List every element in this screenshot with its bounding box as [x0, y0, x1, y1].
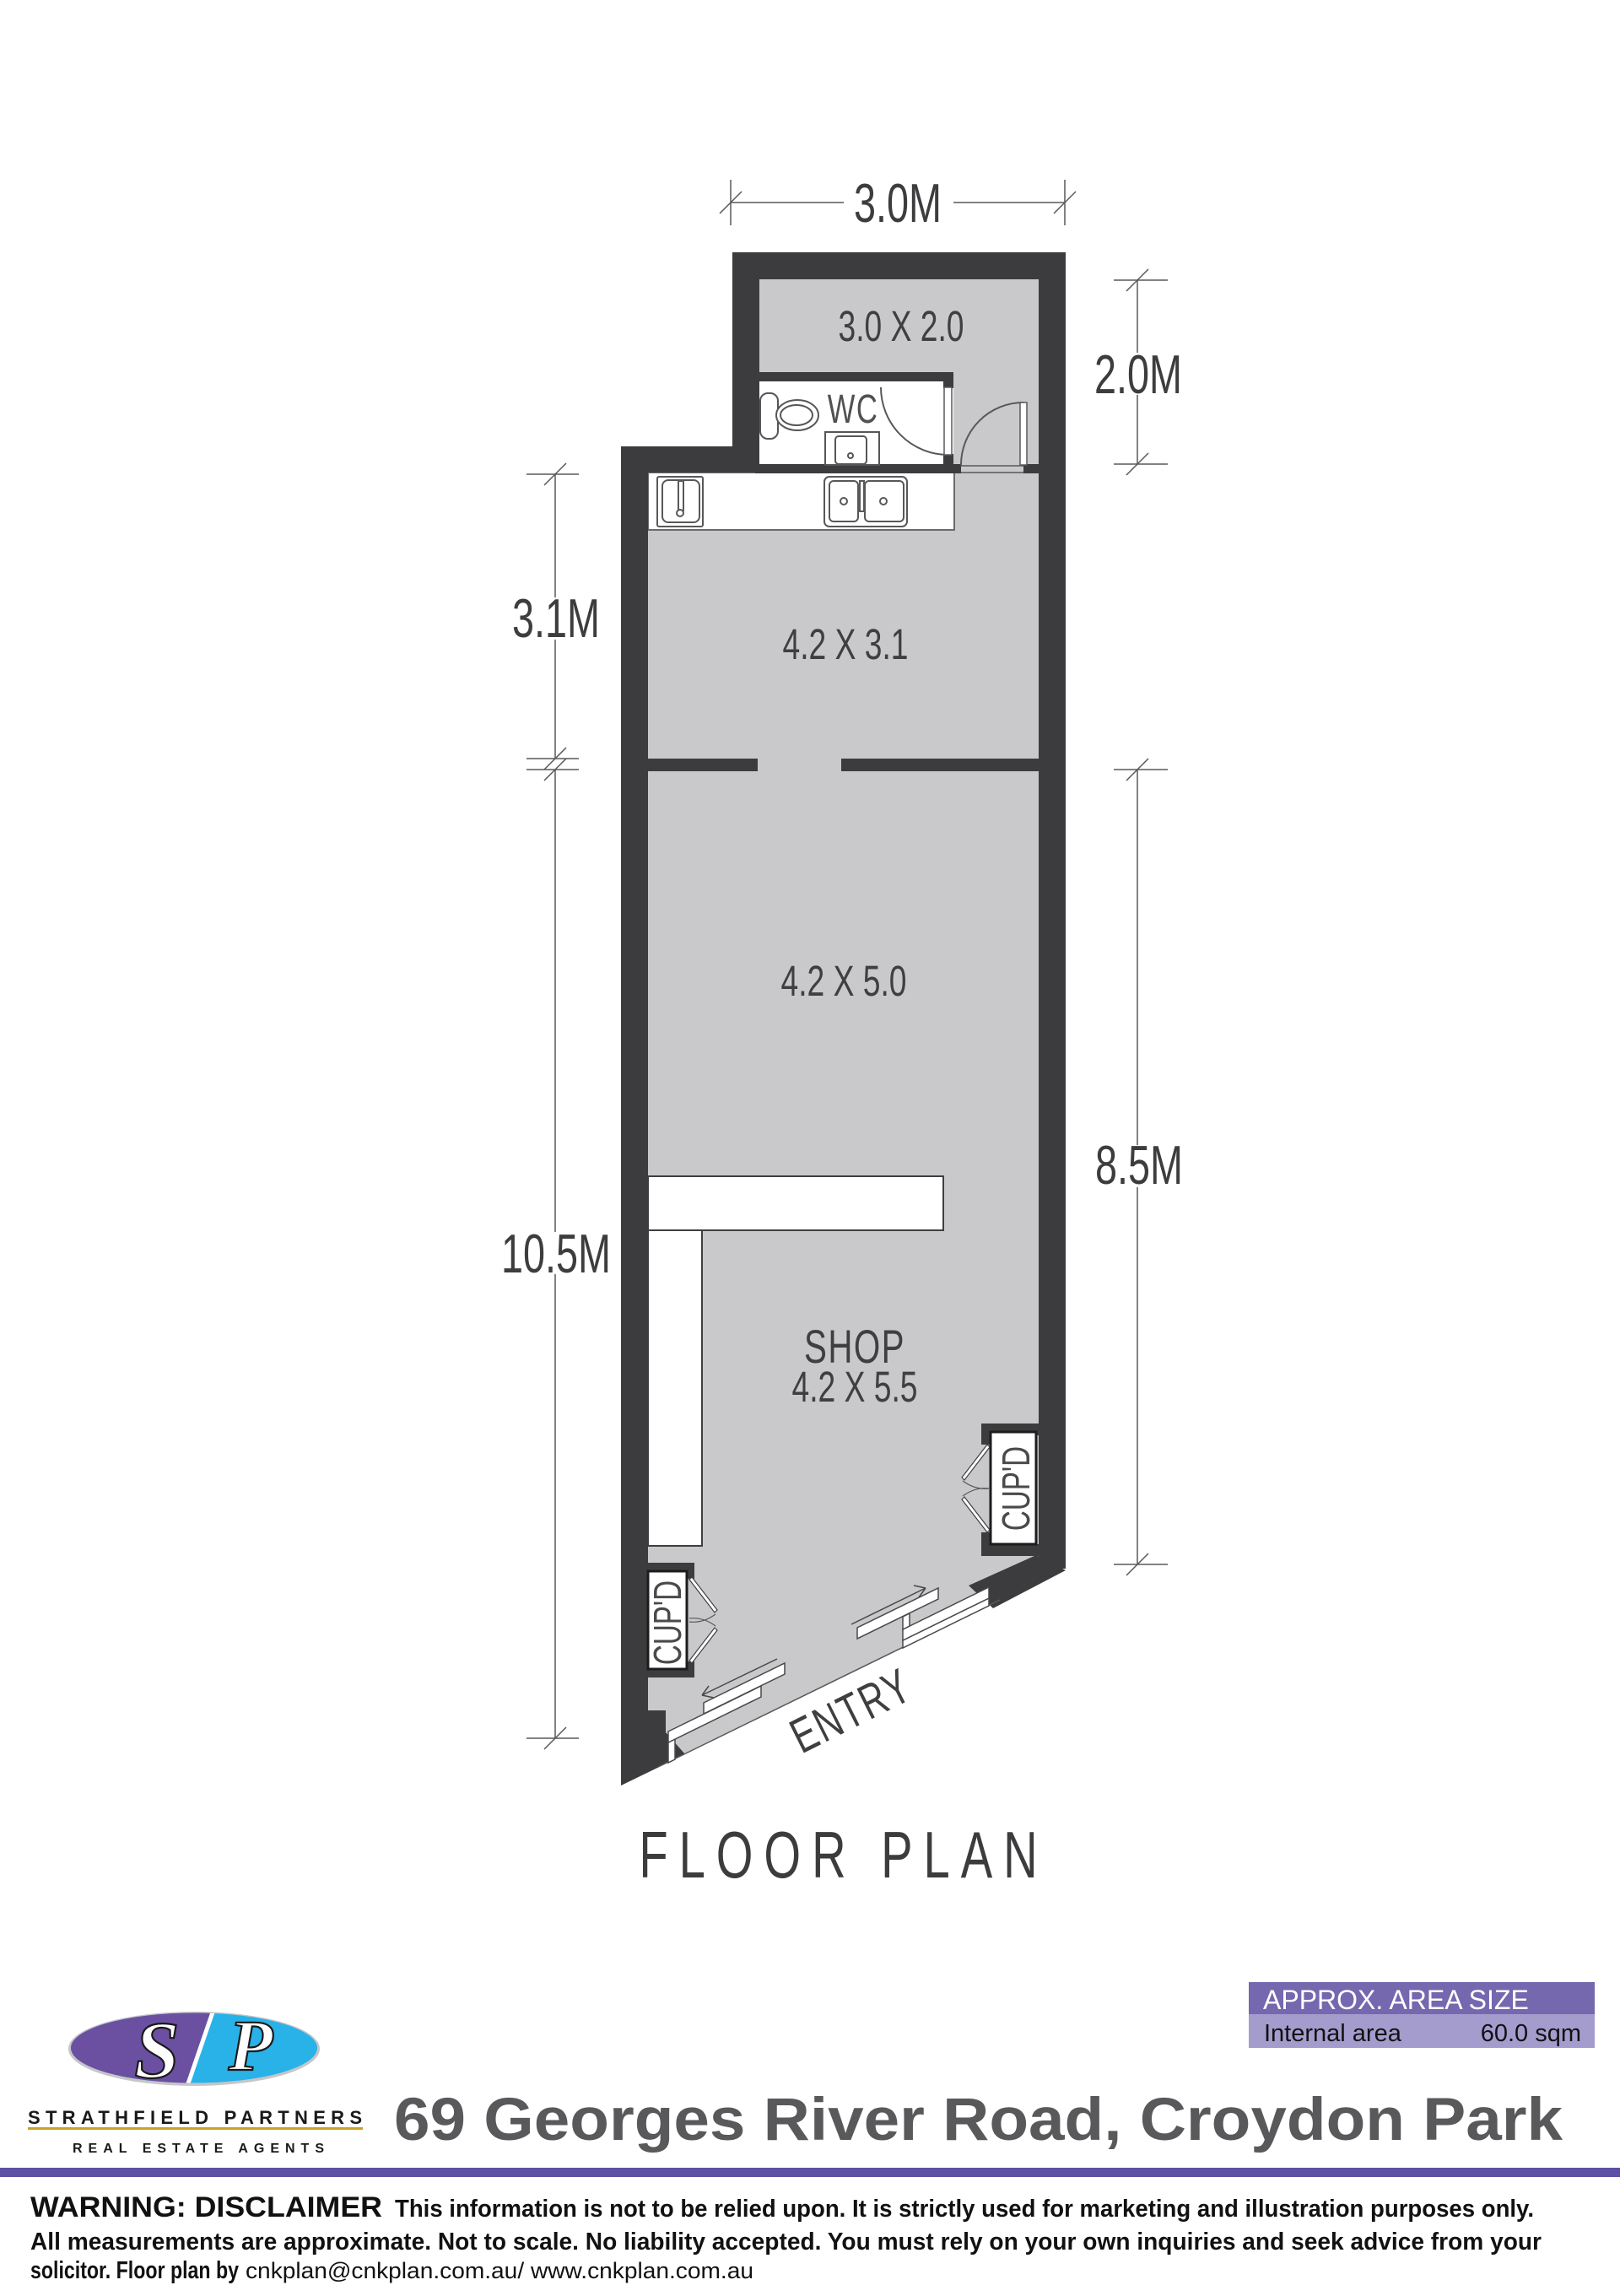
svg-text:4.2 X 5.0: 4.2 X 5.0 — [781, 958, 907, 1005]
svg-text:4.2 X 3.1: 4.2 X 3.1 — [783, 621, 909, 668]
svg-text:solicitor. Floor plan by: solicitor. Floor plan by — [30, 2257, 239, 2284]
svg-text:3.1M: 3.1M — [512, 589, 600, 650]
svg-text:cnkplan@cnkplan.com.au/ www.cn: cnkplan@cnkplan.com.au/ www.cnkplan.com.… — [246, 2258, 753, 2283]
svg-text:WARNING: DISCLAIMER: WARNING: DISCLAIMER — [30, 2191, 382, 2223]
svg-text:P: P — [228, 2005, 274, 2086]
svg-text:CUP'D: CUP'D — [647, 1580, 689, 1665]
svg-text:69 Georges River Road, Croydon: 69 Georges River Road, Croydon Park — [394, 2087, 1563, 2153]
svg-text:Internal area: Internal area — [1264, 2020, 1402, 2047]
svg-text:10.5M: 10.5M — [501, 1224, 611, 1285]
svg-text:8.5M: 8.5M — [1095, 1136, 1183, 1197]
svg-text:APPROX. AREA SIZE: APPROX. AREA SIZE — [1263, 1985, 1529, 2015]
svg-text:All measurements are approxima: All measurements are approximate. Not to… — [30, 2228, 1542, 2255]
svg-text:S: S — [134, 2005, 179, 2095]
svg-text:60.0 sqm: 60.0 sqm — [1481, 2020, 1581, 2047]
svg-text:This information is not to be: This information is not to be relied upo… — [395, 2196, 1534, 2223]
svg-text:WC: WC — [828, 386, 878, 431]
svg-text:3.0 X 2.0: 3.0 X 2.0 — [839, 303, 964, 350]
svg-text:3.0M: 3.0M — [854, 174, 942, 235]
svg-text:2.0M: 2.0M — [1094, 345, 1182, 406]
svg-text:4.2 X 5.5: 4.2 X 5.5 — [792, 1364, 918, 1411]
svg-text:CUP'D: CUP'D — [996, 1446, 1038, 1531]
svg-text:FLOOR PLAN: FLOOR PLAN — [639, 1818, 1048, 1892]
